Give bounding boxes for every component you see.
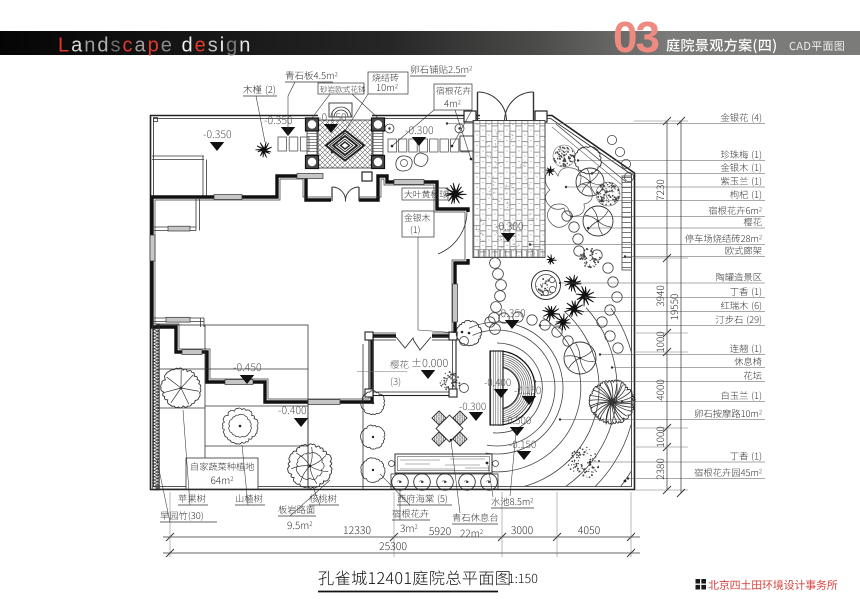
svg-text:03: 03 xyxy=(613,13,658,62)
svg-text:Landscape design: Landscape design xyxy=(58,35,252,57)
